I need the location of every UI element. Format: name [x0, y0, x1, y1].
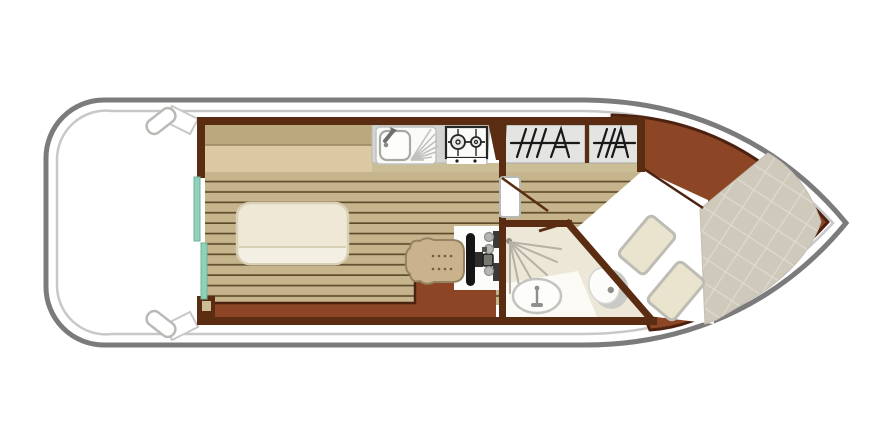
- wardrobe-divider: [585, 125, 589, 163]
- corner-step: [202, 301, 211, 311]
- wall-bottom: [197, 317, 657, 325]
- helm-seat: [406, 238, 464, 284]
- dinette-table: [237, 203, 348, 264]
- boat-deck-plan: [0, 0, 890, 446]
- wheel-hub: [475, 252, 483, 267]
- wheel-column: [483, 254, 493, 266]
- sliding-door-panel: [194, 177, 200, 241]
- bench-seat: [205, 125, 372, 172]
- wall-top: [197, 117, 645, 125]
- wall-wardrobe-right: [637, 117, 645, 172]
- steering-wheel-icon: [466, 233, 475, 286]
- sink-icon: [376, 127, 438, 164]
- bench-seat-cushion: [205, 145, 372, 172]
- wall-bathroom-left: [499, 217, 506, 323]
- bench-back-cushion: [205, 125, 372, 145]
- hob-knob-strip: [447, 158, 486, 164]
- sliding-door-panel: [201, 243, 207, 299]
- wall-galley-right: [499, 140, 506, 178]
- wall-left-upper: [197, 117, 205, 178]
- table-leaf: [239, 247, 346, 263]
- galley: [372, 125, 490, 164]
- washbasin-icon: [513, 279, 561, 313]
- gas-hob-icon: [446, 127, 487, 164]
- wardrobe-corridor: [505, 125, 639, 163]
